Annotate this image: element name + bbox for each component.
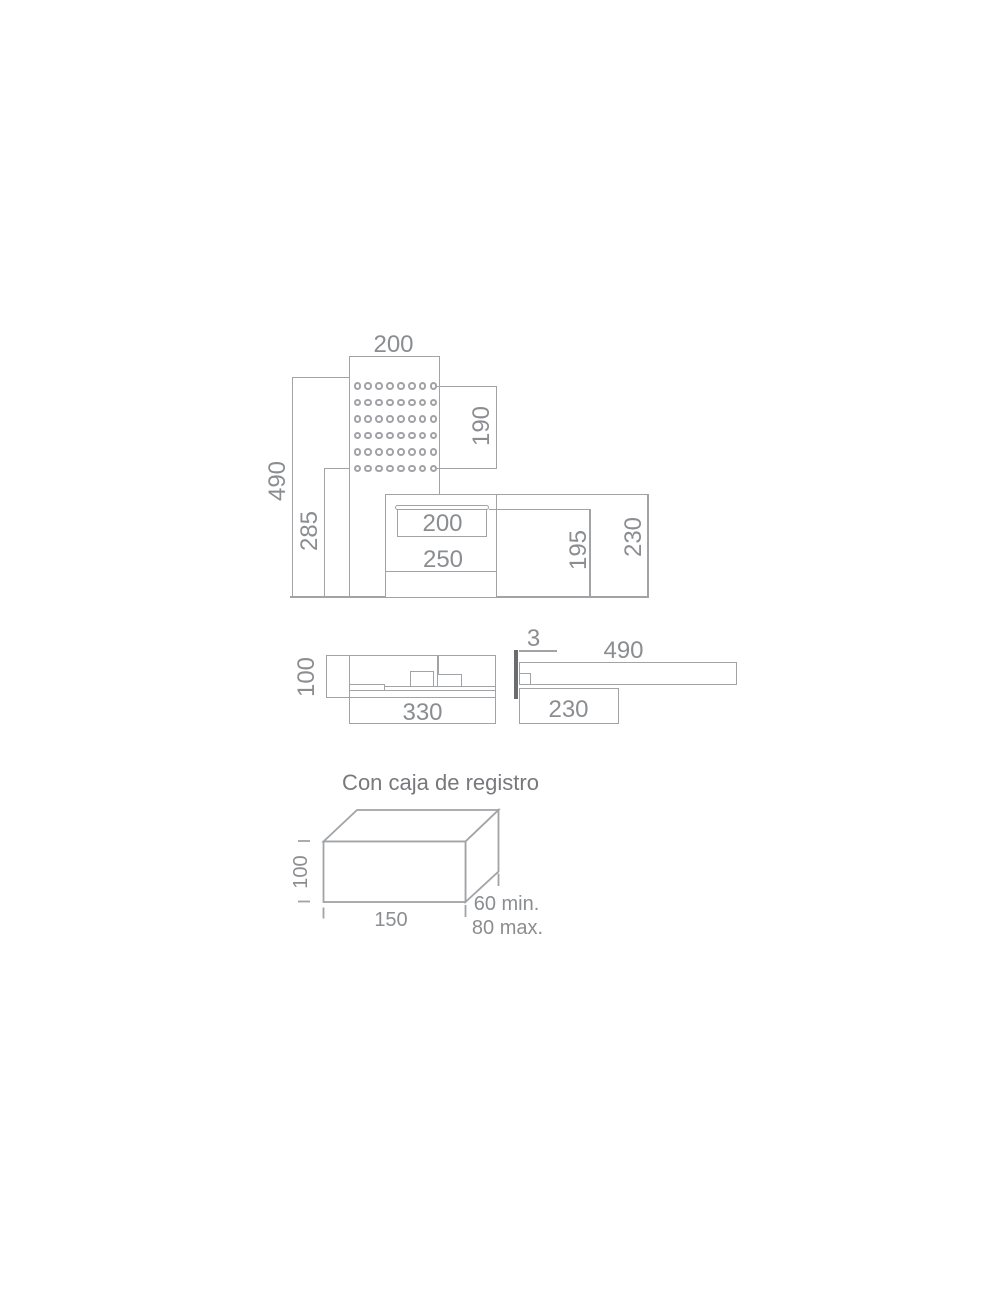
dim-label-box-width: 150 <box>374 910 407 930</box>
dim-label-box-depth-max: 80 max. <box>472 918 543 938</box>
technical-drawing-sheet: 200 490 285 190 200 250 195 230 100 330 … <box>0 0 1000 1300</box>
dim-label-box-height: 100 <box>291 855 311 888</box>
dim-label-box-depth-min: 60 min. <box>474 894 540 914</box>
junction-box-isometric <box>0 0 1000 1300</box>
box-front-face <box>324 842 466 903</box>
